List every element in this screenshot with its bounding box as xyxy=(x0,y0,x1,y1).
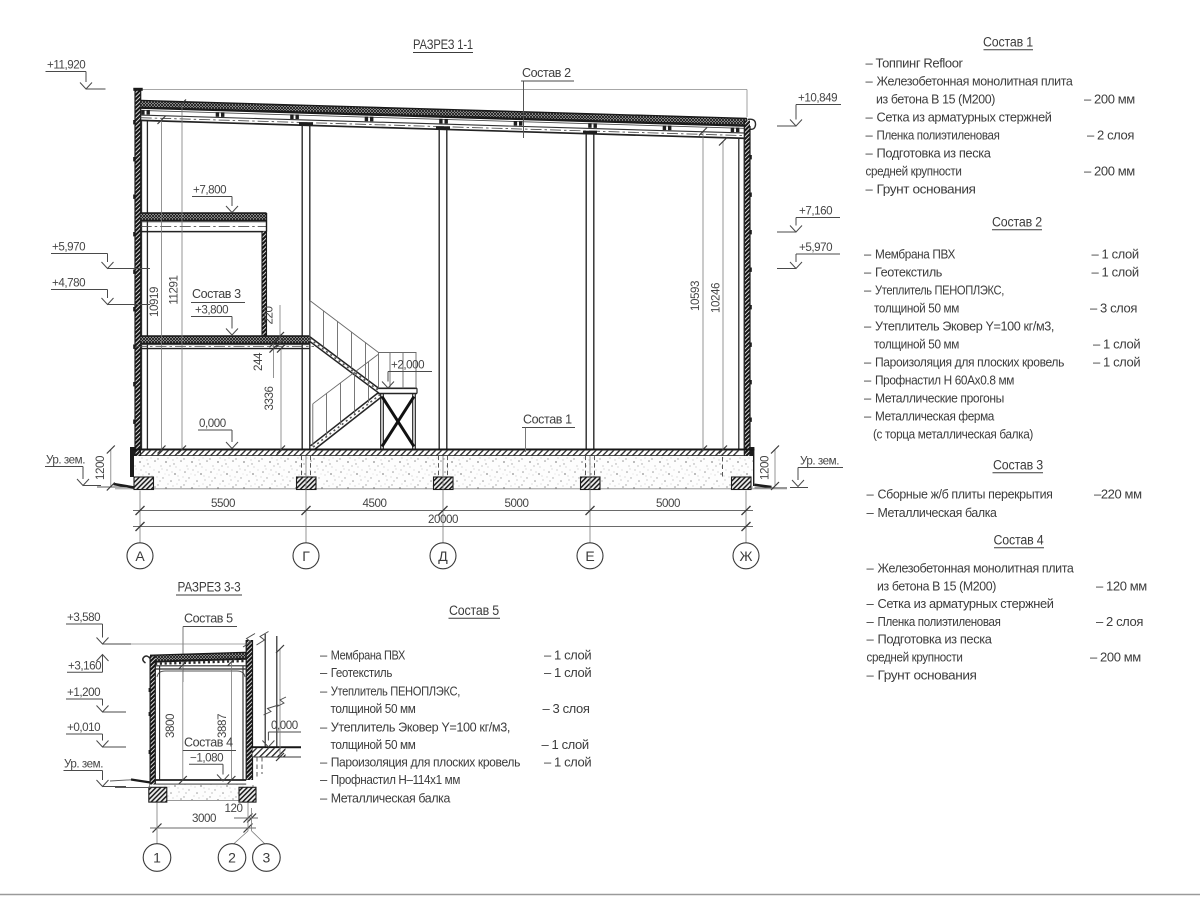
svg-text:1: 1 xyxy=(153,850,161,866)
svg-text:–: – xyxy=(867,561,875,576)
svg-text:Ур. зем.: Ур. зем. xyxy=(800,455,839,468)
svg-text:+3,800: +3,800 xyxy=(195,304,228,317)
svg-text:Состав 1: Состав 1 xyxy=(523,413,572,427)
svg-text:– 1 слой: – 1 слой xyxy=(544,665,591,680)
svg-text:3887: 3887 xyxy=(216,714,229,738)
svg-text:3: 3 xyxy=(263,850,271,866)
svg-text:220: 220 xyxy=(263,307,276,325)
svg-text:–: – xyxy=(866,182,874,197)
svg-text:244: 244 xyxy=(252,352,265,371)
svg-text:толщиной 50 мм: толщиной 50 мм xyxy=(331,701,416,716)
svg-text:– 1 слой: – 1 слой xyxy=(544,755,591,770)
svg-text:Д: Д xyxy=(438,548,448,564)
svg-text:Пленка полиэтиленовая: Пленка полиэтиленовая xyxy=(877,128,1000,143)
svg-text:Состав 5: Состав 5 xyxy=(449,603,499,618)
svg-text:Утеплитель Эковер Y=100 кг/м3,: Утеплитель Эковер Y=100 кг/м3, xyxy=(875,319,1054,334)
svg-text:5000: 5000 xyxy=(656,497,680,510)
svg-text:Е: Е xyxy=(585,548,594,564)
svg-text:Состав 3: Состав 3 xyxy=(993,458,1043,473)
svg-text:– 1 слой: – 1 слой xyxy=(1092,247,1139,262)
svg-text:–: – xyxy=(867,668,875,683)
svg-text:Пароизоляция для плоских крове: Пароизоляция для плоских кровель xyxy=(875,355,1065,370)
svg-text:толщиной 50 мм: толщиной 50 мм xyxy=(331,737,416,752)
svg-text:Мембрана ПВХ: Мембрана ПВХ xyxy=(875,247,956,262)
svg-text:+7,160: +7,160 xyxy=(799,205,832,218)
svg-text:Утеплитель Эковер Y=100 кг/м3,: Утеплитель Эковер Y=100 кг/м3, xyxy=(331,720,510,735)
svg-text:+11,920: +11,920 xyxy=(47,59,85,72)
svg-text:– 1 слой: – 1 слой xyxy=(1093,337,1140,352)
svg-text:Подготовка из песка: Подготовка из песка xyxy=(878,632,993,647)
svg-text:120: 120 xyxy=(225,802,243,815)
svg-text:Сборные ж/б плиты перекрытия: Сборные ж/б плиты перекрытия xyxy=(878,487,1053,502)
svg-text:Сетка из арматурных стержней: Сетка из арматурных стержней xyxy=(877,110,1052,125)
svg-text:толщиной 50 мм: толщиной 50 мм xyxy=(874,337,959,352)
svg-text:–: – xyxy=(866,74,874,89)
svg-text:Подготовка из песка: Подготовка из песка xyxy=(877,146,992,161)
svg-text:+4,780: +4,780 xyxy=(52,277,85,290)
svg-text:–: – xyxy=(866,128,874,143)
svg-text:11291: 11291 xyxy=(168,275,181,304)
svg-text:– 1 слой: – 1 слой xyxy=(544,648,591,663)
svg-text:–: – xyxy=(864,409,872,424)
svg-text:–: – xyxy=(867,596,875,611)
svg-text:+5,970: +5,970 xyxy=(799,241,832,254)
svg-text:–: – xyxy=(320,755,328,770)
svg-text:–: – xyxy=(864,265,872,280)
svg-text:Пароизоляция для плоских крове: Пароизоляция для плоских кровель xyxy=(331,755,521,770)
svg-text:–: – xyxy=(867,632,875,647)
svg-text:Геотекстиль: Геотекстиль xyxy=(875,265,943,280)
svg-text:– 1 слой: – 1 слой xyxy=(542,737,589,752)
svg-text:0,000: 0,000 xyxy=(271,719,298,732)
svg-text:0,000: 0,000 xyxy=(199,417,226,430)
svg-text:– 1 слой: – 1 слой xyxy=(1093,355,1140,370)
svg-text:–: – xyxy=(864,391,872,406)
svg-text:– 2 слоя: – 2 слоя xyxy=(1087,128,1134,143)
svg-text:+1,200: +1,200 xyxy=(67,686,100,699)
svg-text:–: – xyxy=(320,791,328,806)
svg-text:5500: 5500 xyxy=(211,497,235,510)
svg-text:А: А xyxy=(135,548,145,564)
svg-text:–220 мм: –220 мм xyxy=(1094,487,1142,502)
svg-text:+3,580: +3,580 xyxy=(67,611,100,624)
svg-text:–: – xyxy=(864,283,872,298)
svg-text:–: – xyxy=(864,319,872,334)
svg-text:+2,000: +2,000 xyxy=(391,359,424,372)
svg-text:–: – xyxy=(864,355,872,370)
svg-text:Ур. зем.: Ур. зем. xyxy=(64,758,103,771)
svg-text:Г: Г xyxy=(302,548,310,564)
svg-text:– 3 слоя: – 3 слоя xyxy=(1090,301,1137,316)
svg-text:–: – xyxy=(320,720,328,735)
svg-text:из бетона В 15 (М200): из бетона В 15 (М200) xyxy=(876,92,995,107)
svg-text:– 200 мм: – 200 мм xyxy=(1090,650,1141,665)
svg-text:–: – xyxy=(867,614,875,629)
svg-text:Мембрана ПВХ: Мембрана ПВХ xyxy=(331,648,406,663)
svg-text:+5,970: +5,970 xyxy=(52,241,85,254)
svg-text:Состав 4: Состав 4 xyxy=(184,736,233,750)
svg-text:Грунт основания: Грунт основания xyxy=(877,182,976,197)
svg-text:3000: 3000 xyxy=(192,812,216,825)
svg-text:2: 2 xyxy=(228,850,236,866)
svg-text:– 200 мм: – 200 мм xyxy=(1084,164,1135,179)
svg-text:средней крупности: средней крупности xyxy=(867,650,963,665)
svg-text:Металлическая балка: Металлическая балка xyxy=(878,505,998,520)
svg-text:Профнастил Н 60Ах0.8 мм: Профнастил Н 60Ах0.8 мм xyxy=(875,373,1014,388)
svg-text:1200: 1200 xyxy=(759,456,772,480)
svg-text:Состав 1: Состав 1 xyxy=(983,35,1033,50)
svg-text:+7,800: +7,800 xyxy=(193,184,226,197)
svg-text:средней крупности: средней крупности xyxy=(866,164,962,179)
svg-text:Металлическая балка: Металлическая балка xyxy=(331,791,451,806)
svg-text:3800: 3800 xyxy=(164,714,177,738)
svg-text:+0,010: +0,010 xyxy=(67,721,100,734)
svg-text:–: – xyxy=(320,665,328,680)
svg-text:Состав 2: Состав 2 xyxy=(992,215,1042,230)
svg-text:Состав 3: Состав 3 xyxy=(192,287,241,301)
svg-text:из бетона В 15 (М200): из бетона В 15 (М200) xyxy=(877,579,996,594)
svg-text:4500: 4500 xyxy=(363,497,387,510)
svg-text:– 1 слой: – 1 слой xyxy=(1092,265,1139,280)
svg-text:(с торца металлическая балка): (с торца металлическая балка) xyxy=(873,427,1033,442)
svg-text:– 120 мм: – 120 мм xyxy=(1096,579,1147,594)
svg-text:толщиной 50 мм: толщиной 50 мм xyxy=(874,301,959,316)
svg-text:– 3 слоя: – 3 слоя xyxy=(543,701,590,716)
svg-text:Сетка из арматурных стержней: Сетка из арматурных стержней xyxy=(878,596,1054,611)
svg-text:Геотекстиль: Геотекстиль xyxy=(331,665,393,680)
svg-text:Утеплитель ПЕНОПЛЭКС,: Утеплитель ПЕНОПЛЭКС, xyxy=(331,684,460,699)
svg-text:–: – xyxy=(320,684,328,699)
svg-text:–: – xyxy=(866,146,874,161)
svg-text:Утеплитель ПЕНОПЛЭКС,: Утеплитель ПЕНОПЛЭКС, xyxy=(875,283,1004,298)
svg-text:Железобетонная монолитная пли: Железобетонная монолитная плита xyxy=(878,561,1075,576)
svg-text:Металлические прогоны: Металлические прогоны xyxy=(875,391,1004,406)
svg-text:– 200 мм: – 200 мм xyxy=(1084,92,1135,107)
svg-text:–: – xyxy=(864,373,872,388)
svg-text:Состав 4: Состав 4 xyxy=(994,533,1045,548)
svg-text:– Топпинг Refloor: – Топпинг Refloor xyxy=(866,56,964,71)
svg-text:Ур. зем.: Ур. зем. xyxy=(46,454,85,467)
svg-text:Грунт основания: Грунт основания xyxy=(878,668,977,683)
svg-text:+3,160: +3,160 xyxy=(68,659,101,672)
svg-text:Пленка полиэтиленовая: Пленка полиэтиленовая xyxy=(878,614,1001,629)
svg-text:+10,849: +10,849 xyxy=(798,92,837,105)
svg-text:10246: 10246 xyxy=(710,283,723,313)
svg-text:РАЗРЕЗ 3-3: РАЗРЕЗ 3-3 xyxy=(178,580,241,595)
svg-text:Железобетонная монолитная пли: Железобетонная монолитная плита xyxy=(877,74,1074,89)
svg-text:20000: 20000 xyxy=(428,513,458,526)
svg-text:–: – xyxy=(864,247,872,262)
svg-text:РАЗРЕЗ 1-1: РАЗРЕЗ 1-1 xyxy=(413,37,473,52)
svg-text:Ж: Ж xyxy=(740,548,753,564)
svg-text:–: – xyxy=(320,772,328,787)
svg-text:1200: 1200 xyxy=(94,456,107,480)
svg-text:Состав 5: Состав 5 xyxy=(184,612,233,626)
svg-text:–: – xyxy=(867,487,875,502)
svg-text:5000: 5000 xyxy=(505,497,529,510)
svg-text:–: – xyxy=(866,110,874,125)
svg-text:10919: 10919 xyxy=(148,287,161,317)
svg-text:Профнастил Н–114х1 мм: Профнастил Н–114х1 мм xyxy=(331,772,461,787)
svg-text:–: – xyxy=(320,648,328,663)
svg-text:Металлическая ферма: Металлическая ферма xyxy=(875,409,995,424)
svg-text:10593: 10593 xyxy=(689,281,702,311)
svg-text:−1,080: −1,080 xyxy=(190,752,223,765)
svg-text:3336: 3336 xyxy=(263,387,276,411)
svg-text:– 2 слоя: – 2 слоя xyxy=(1096,614,1143,629)
svg-text:–: – xyxy=(867,505,875,520)
svg-text:Состав 2: Состав 2 xyxy=(522,66,571,80)
